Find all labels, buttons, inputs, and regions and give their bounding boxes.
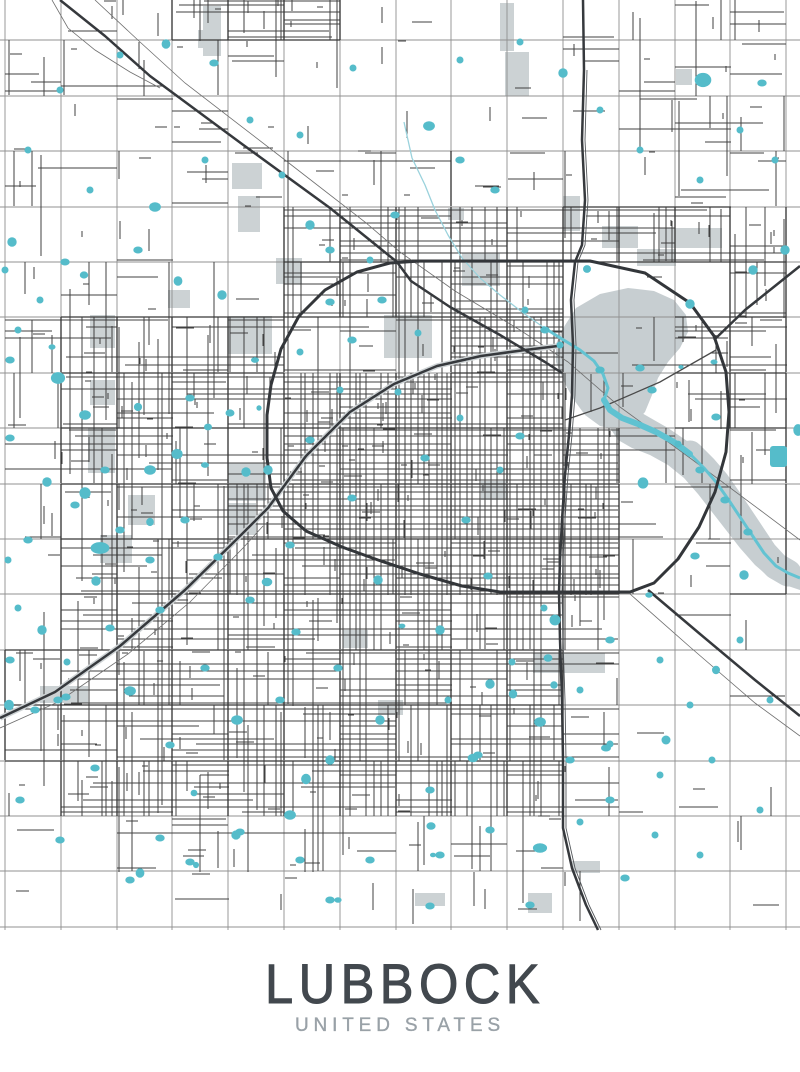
svg-text:LUBBOCK: LUBBOCK [265, 952, 545, 1015]
svg-text:UNITED STATES: UNITED STATES [295, 1014, 505, 1036]
